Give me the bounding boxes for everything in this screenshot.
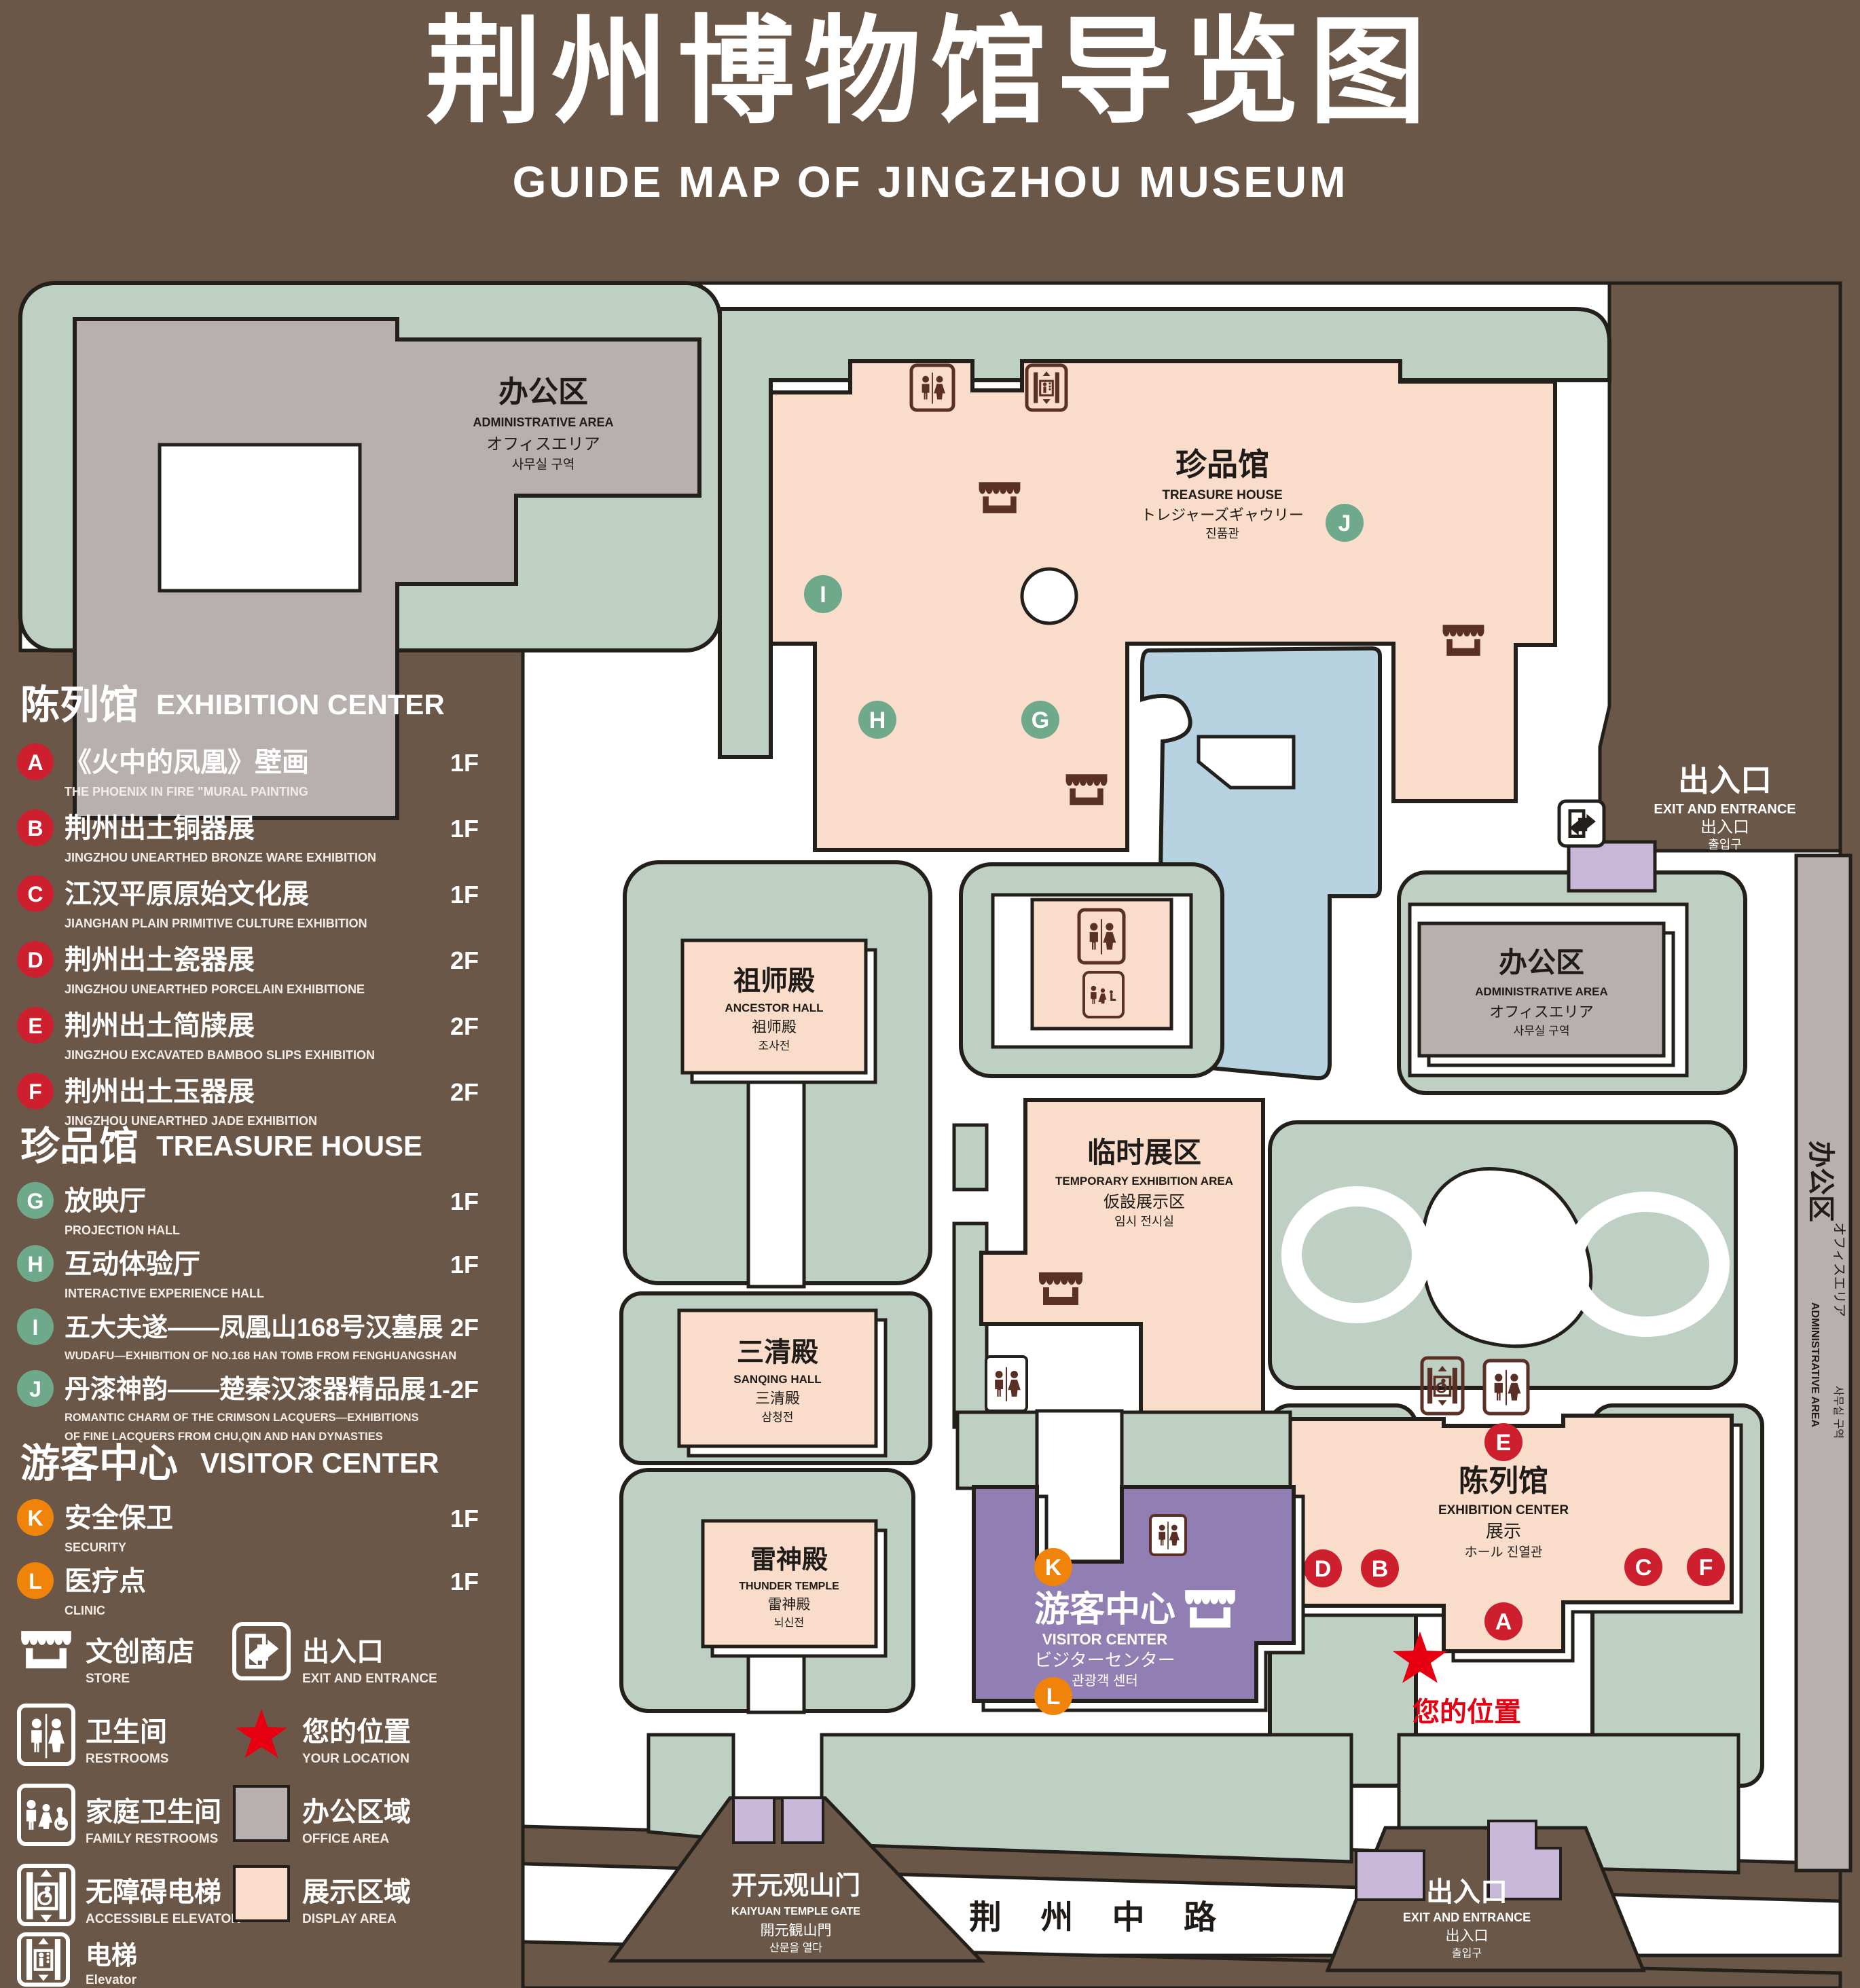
svg-text:1-2F: 1-2F xyxy=(428,1376,479,1403)
exhibition-label-zh: 陈列馆 xyxy=(1459,1465,1548,1498)
exhibition-label-sub: ホール 진열관 xyxy=(1465,1545,1543,1560)
temp-green-1 xyxy=(954,1125,987,1190)
svg-text:J: J xyxy=(29,1377,41,1401)
page-title: 荆州博物馆导览图 xyxy=(425,7,1436,137)
temporary-label-en: TEMPORARY EXHIBITION AREA xyxy=(1055,1175,1233,1188)
svg-text:JIANGHAN PLAIN PRIMITIVE CULTU: JIANGHAN PLAIN PRIMITIVE CULTURE EXHIBIT… xyxy=(65,917,367,930)
svg-text:1F: 1F xyxy=(450,1251,479,1278)
svg-text:L: L xyxy=(1046,1684,1061,1710)
exit-ne-zh: 出入口 xyxy=(1678,762,1772,798)
svg-text:1F: 1F xyxy=(450,881,479,908)
admin-nw-label-zh: 办公区 xyxy=(498,375,588,409)
exhibition-restrooms-icon xyxy=(1484,1361,1528,1414)
svg-text:安全保卫: 安全保卫 xyxy=(65,1503,173,1533)
legend-accessible-zh: 无障碍电梯 xyxy=(86,1877,221,1907)
north-gatehouse xyxy=(1569,842,1655,891)
accessible-elevator-icon xyxy=(19,1866,73,1924)
svg-text:B: B xyxy=(27,816,43,841)
admin-strip-en: ADMINISTRATIVE AREA xyxy=(1809,1302,1821,1427)
legend-section-visitor-en: VISITOR CENTER xyxy=(200,1447,439,1479)
road-label: 荆 州 中 路 xyxy=(969,1900,1231,1936)
svg-text:放映厅: 放映厅 xyxy=(65,1186,146,1216)
ancestor-label-zh: 祖师殿 xyxy=(733,966,815,996)
marker-E: E xyxy=(1484,1423,1522,1461)
thunder-label-en: THUNDER TEMPLE xyxy=(739,1581,839,1592)
svg-text:1F: 1F xyxy=(450,1505,479,1532)
svg-text:互动体验厅: 互动体验厅 xyxy=(65,1249,200,1279)
guide-map-sign: 荆州博物馆导览图 GUIDE MAP OF JINGZHOU MUSEUM 荆 … xyxy=(0,0,1860,1988)
temporary-restrooms-icon xyxy=(986,1357,1027,1411)
exit-s-ko: 출입구 xyxy=(1452,1947,1482,1959)
exit-ne-en: EXIT AND ENTRANCE xyxy=(1654,802,1795,817)
temporary-label-zh: 临时展区 xyxy=(1087,1137,1201,1168)
legend-office-zh: 办公区域 xyxy=(302,1797,411,1827)
svg-text:五大夫遂——凤凰山168号汉墓展: 五大夫遂——凤凰山168号汉墓展 xyxy=(65,1314,443,1342)
marker-L: L xyxy=(1034,1677,1072,1715)
visitor-label-en: VISITOR CENTER xyxy=(1042,1631,1167,1648)
legend-office-en: OFFICE AREA xyxy=(302,1832,389,1846)
svg-text:D: D xyxy=(27,948,43,972)
admin-strip-ja: オフィスエリア xyxy=(1831,1222,1846,1317)
legend-accessible-en: ACCESSIBLE ELEVATOR xyxy=(86,1912,240,1926)
admin-nw-label-ja: オフィスエリア xyxy=(486,435,600,454)
legend-location-zh: 您的位置 xyxy=(302,1717,411,1747)
svg-text:2F: 2F xyxy=(450,1078,479,1106)
treasure-label-ja: トレジャーズギャウリー xyxy=(1141,507,1304,523)
legend-section-visitor-zh: 游客中心 xyxy=(20,1441,178,1486)
svg-text:2F: 2F xyxy=(450,946,479,974)
marker-F: F xyxy=(1687,1548,1725,1586)
svg-text:J: J xyxy=(1338,511,1351,536)
svg-text:JINGZHOU UNEARTHED BRONZE WARE: JINGZHOU UNEARTHED BRONZE WARE EXHIBITIO… xyxy=(65,851,376,864)
svg-text:I: I xyxy=(820,582,826,608)
svg-text:1F: 1F xyxy=(450,815,479,843)
svg-text:B: B xyxy=(1372,1556,1389,1582)
svg-text:E: E xyxy=(28,1014,42,1038)
visitor-label-ja: ビジターセンター xyxy=(1034,1650,1175,1670)
marker-B: B xyxy=(1361,1549,1399,1587)
sanqing-label-zh: 三清殿 xyxy=(737,1338,818,1367)
admin-strip-east xyxy=(1796,855,1850,1871)
lawn-south-2 xyxy=(822,1735,1351,1862)
ancestor-path xyxy=(748,1076,804,1287)
legend-display-zh: 展示区域 xyxy=(302,1877,411,1907)
ancestor-label-zh2: 祖师殿 xyxy=(752,1018,797,1035)
visitor-restrooms-icon xyxy=(1150,1515,1186,1555)
ancestor-label-en: ANCESTOR HALL xyxy=(725,1001,823,1014)
legend-location-en: YOUR LOCATION xyxy=(302,1752,409,1766)
legend-restrooms-zh: 卫生间 xyxy=(86,1717,167,1747)
round-plaza xyxy=(1022,569,1076,623)
legend-family-zh: 家庭卫生间 xyxy=(86,1797,221,1827)
svg-text:H: H xyxy=(27,1252,43,1276)
svg-text:E: E xyxy=(1496,1430,1512,1456)
treasure-label-en: TREASURE HOUSE xyxy=(1162,488,1282,502)
legend-display-en: DISPLAY AREA xyxy=(302,1912,397,1926)
gate-label-ko: 산문을 열다 xyxy=(769,1942,822,1954)
svg-text:荆州出土铜器展: 荆州出土铜器展 xyxy=(65,813,255,843)
svg-text:WUDAFU—EXHIBITION OF NO.168 HA: WUDAFU—EXHIBITION OF NO.168 HAN TOMB FRO… xyxy=(65,1350,456,1362)
svg-text:C: C xyxy=(1635,1555,1652,1581)
marker-D: D xyxy=(1304,1549,1342,1587)
svg-text:1F: 1F xyxy=(450,1188,479,1215)
svg-text:荆州出土瓷器展: 荆州出土瓷器展 xyxy=(65,945,255,975)
marker-A: A xyxy=(1484,1602,1522,1640)
svg-text:荆州出土简牍展: 荆州出土简牍展 xyxy=(65,1011,255,1041)
visitor-notch-path xyxy=(1037,1411,1122,1563)
office-area-swatch xyxy=(234,1786,289,1841)
legend-elevator-zh: 电梯 xyxy=(86,1942,137,1970)
sanqing-label-zh2: 三清殿 xyxy=(755,1390,800,1407)
svg-text:SECURITY: SECURITY xyxy=(65,1541,126,1554)
admin-strip-zh: 办公区 xyxy=(1806,1141,1836,1222)
svg-text:K: K xyxy=(1045,1555,1062,1581)
visitor-green xyxy=(958,1412,1290,1488)
svg-text:H: H xyxy=(869,707,886,733)
gate-label-ja: 開元観山門 xyxy=(761,1923,832,1938)
admin-e-label-en: ADMINISTRATIVE AREA xyxy=(1475,985,1608,998)
exit-ne-zh2: 出入口 xyxy=(1700,818,1749,836)
treasure-label-ko: 진품관 xyxy=(1205,527,1239,540)
svg-text:《火中的凤凰》壁画: 《火中的凤凰》壁画 xyxy=(65,748,309,777)
treasure-label-zh: 珍品馆 xyxy=(1175,447,1269,482)
svg-text:THE PHOENIX IN FIRE "MURAL PAI: THE PHOENIX IN FIRE "MURAL PAINTING xyxy=(65,785,308,798)
svg-text:A: A xyxy=(1495,1609,1512,1635)
legend-section-treasure-en: TREASURE HOUSE xyxy=(156,1130,422,1162)
sanqing-label-ko: 삼청전 xyxy=(762,1411,794,1424)
admin-nw-courtyard xyxy=(160,445,360,591)
legend-exit-zh: 出入口 xyxy=(302,1637,384,1667)
svg-text:JINGZHOU EXCAVATED BAMBOO SLIP: JINGZHOU EXCAVATED BAMBOO SLIPS EXHIBITI… xyxy=(65,1048,375,1062)
svg-text:G: G xyxy=(1032,707,1049,733)
svg-text:丹漆神韵——楚秦汉漆器精品展: 丹漆神韵——楚秦汉漆器精品展 xyxy=(65,1376,426,1404)
svg-text:A: A xyxy=(27,750,43,775)
legend-store-en: STORE xyxy=(86,1672,130,1686)
legend-item-I: I 五大夫遂——凤凰山168号汉墓展 WUDAFU—EXHIBITION OF … xyxy=(17,1308,479,1362)
admin-nw-label-ko: 사무실 구역 xyxy=(512,457,575,472)
svg-text:JINGZHOU UNEARTHED PORCELAIN E: JINGZHOU UNEARTHED PORCELAIN EXHIBITIONE xyxy=(65,982,365,996)
sanqing-label-en: SANQING HALL xyxy=(733,1373,821,1386)
your-location-label: 您的位置 xyxy=(1412,1697,1521,1727)
svg-text:荆州出土玉器展: 荆州出土玉器展 xyxy=(65,1077,255,1107)
visitor-label-zh: 游客中心 xyxy=(1034,1590,1175,1630)
legend-section-treasure-zh: 珍品馆 xyxy=(20,1124,139,1168)
marker-H: H xyxy=(858,701,896,739)
legend-elevator-en: Elevator xyxy=(86,1973,137,1987)
display-area-swatch xyxy=(234,1866,289,1921)
legend-section-exhibition-zh: 陈列馆 xyxy=(20,683,139,727)
svg-text:K: K xyxy=(27,1506,43,1530)
legend-family-en: FAMILY RESTROOMS xyxy=(86,1832,218,1846)
thunder-label-ko: 뇌신전 xyxy=(774,1617,804,1629)
page-subtitle: GUIDE MAP OF JINGZHOU MUSEUM xyxy=(513,158,1349,206)
legend-restrooms-en: RESTROOMS xyxy=(86,1752,168,1766)
svg-text:江汉平原原始文化展: 江汉平原原始文化展 xyxy=(65,879,309,909)
exhibition-label-en: EXHIBITION CENTER xyxy=(1438,1503,1569,1517)
thunder-path xyxy=(748,1655,804,1712)
admin-e-label-zh: 办公区 xyxy=(1499,946,1584,978)
svg-text:2F: 2F xyxy=(450,1314,479,1342)
legend-exit-en: EXIT AND ENTRANCE xyxy=(302,1672,437,1686)
svg-text:医疗点: 医疗点 xyxy=(65,1566,146,1596)
legend-section-exhibition-en: EXHIBITION CENTER xyxy=(156,688,445,720)
gate-label-zh: 开元观山门 xyxy=(731,1872,860,1900)
exit-s-en: EXIT AND ENTRANCE xyxy=(1403,1911,1531,1924)
gate-label-en: KAIYUAN TEMPLE GATE xyxy=(731,1906,860,1917)
svg-text:L: L xyxy=(29,1569,42,1594)
admin-e-label-ko: 사무실 구역 xyxy=(1514,1025,1570,1037)
svg-text:1F: 1F xyxy=(450,749,479,777)
thunder-label-zh2: 雷神殿 xyxy=(768,1597,811,1613)
svg-text:INTERACTIVE EXPERIENCE HALL: INTERACTIVE EXPERIENCE HALL xyxy=(65,1287,264,1300)
ancestor-label-ko: 조사전 xyxy=(759,1039,790,1052)
svg-text:2F: 2F xyxy=(450,1012,479,1040)
marker-C: C xyxy=(1624,1548,1662,1586)
admin-nw-label-en: ADMINISTRATIVE AREA xyxy=(473,416,614,429)
gate-kiosk-west xyxy=(733,1798,774,1843)
exit-s-zh2: 出入口 xyxy=(1446,1928,1489,1944)
marker-J: J xyxy=(1326,504,1364,542)
svg-text:1F: 1F xyxy=(450,1568,479,1596)
svg-text:I: I xyxy=(33,1315,39,1340)
svg-text:D: D xyxy=(1315,1556,1332,1582)
marker-G: G xyxy=(1021,701,1059,739)
admin-strip-ko: 사무실 구역 xyxy=(1832,1386,1844,1439)
visitor-label-ko: 관광객 센터 xyxy=(1072,1673,1138,1689)
gate-kiosk-east xyxy=(782,1798,823,1843)
svg-text:G: G xyxy=(27,1189,44,1213)
svg-text:F: F xyxy=(1699,1555,1713,1581)
legend-store-zh: 文创商店 xyxy=(86,1637,194,1667)
thunder-label-zh: 雷神殿 xyxy=(750,1546,828,1575)
exit-ne-icon xyxy=(1559,801,1604,846)
temporary-label-ja: 仮設展示区 xyxy=(1104,1193,1185,1211)
exit-ne-ko: 출입구 xyxy=(1708,838,1742,851)
svg-text:PROJECTION HALL: PROJECTION HALL xyxy=(65,1223,180,1237)
admin-e-label-ja: オフィスエリア xyxy=(1489,1004,1594,1020)
svg-text:CLINIC: CLINIC xyxy=(65,1604,105,1617)
svg-text:ROMANTIC CHARM OF THE CRIMSON: ROMANTIC CHARM OF THE CRIMSON LACQUERS—E… xyxy=(65,1412,419,1424)
marker-K: K xyxy=(1034,1548,1072,1586)
svg-text:F: F xyxy=(29,1080,42,1104)
svg-text:C: C xyxy=(27,882,43,906)
south-kiosk-west xyxy=(1356,1851,1424,1900)
marker-I: I xyxy=(804,575,842,613)
exit-s-zh: 出入口 xyxy=(1426,1877,1508,1907)
exhibition-label-zh2: 展示 xyxy=(1486,1521,1521,1541)
temporary-label-ko: 임시 전시실 xyxy=(1114,1215,1174,1228)
